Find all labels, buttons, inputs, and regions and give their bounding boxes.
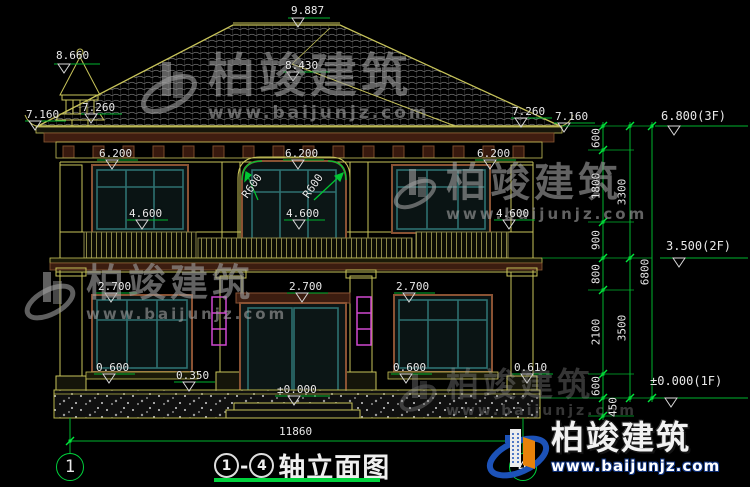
window-sill <box>86 372 198 379</box>
first-floor-right-window <box>388 295 498 379</box>
balcony-railing <box>198 238 412 258</box>
title-underline <box>214 478 380 482</box>
elevation-drawing <box>0 0 750 487</box>
floor-band <box>50 232 542 272</box>
cad-elevation-screenshot: 柏竣建筑 www.baijunjz.com 柏竣建筑 www.baijunjz.… <box>0 0 750 487</box>
entrance-door <box>236 293 350 403</box>
second-floor-left-window <box>92 165 188 233</box>
wall-lamp-right <box>357 297 371 345</box>
dimension-chain-right <box>603 122 652 420</box>
title-start-axis: 1 <box>214 453 239 478</box>
window-sill <box>388 372 498 379</box>
brand-url: www.baijunjz.com <box>551 457 720 475</box>
louver-panel-left <box>84 232 196 258</box>
entry-steps <box>226 403 360 418</box>
title-end-axis: 4 <box>249 453 274 478</box>
title-separator: - <box>240 454 248 478</box>
brand-name: 柏竣建筑 <box>551 421 720 454</box>
second-floor-right-window <box>392 165 490 233</box>
louver-panel-right <box>416 232 508 258</box>
hip-roof <box>38 23 560 126</box>
axis-number: 1 <box>65 457 75 477</box>
brand-logo-swoosh-icon <box>485 421 553 485</box>
first-floor-left-window <box>86 295 198 379</box>
arched-balcony-door <box>238 157 350 250</box>
wall-lamp-left <box>212 297 226 345</box>
brand-logo: 柏竣建筑 www.baijunjz.com <box>485 421 747 485</box>
axis-bubble-1: 1 <box>56 453 84 481</box>
